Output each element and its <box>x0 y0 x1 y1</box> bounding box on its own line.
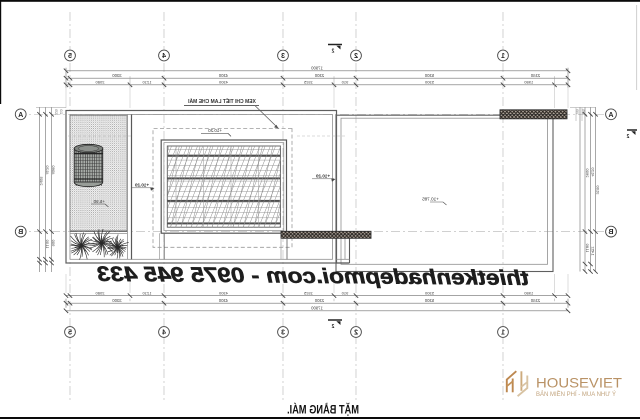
svg-text:1925: 1925 <box>303 80 313 85</box>
svg-text:5: 5 <box>68 53 72 60</box>
svg-text:+10.20: +10.20 <box>208 128 222 133</box>
svg-text:A: A <box>18 112 23 119</box>
svg-text:B: B <box>18 229 23 236</box>
svg-text:1210: 1210 <box>142 80 152 85</box>
svg-text:1: 1 <box>501 330 505 337</box>
svg-text:2405: 2405 <box>39 176 44 186</box>
svg-text:MẶT BẰNG MÁI.: MẶT BẰNG MÁI. <box>287 404 359 417</box>
svg-text:100: 100 <box>575 109 579 115</box>
svg-text:2: 2 <box>354 330 358 337</box>
svg-text:2: 2 <box>331 48 334 54</box>
svg-text:4060: 4060 <box>51 165 56 175</box>
svg-text:4300: 4300 <box>218 80 228 85</box>
svg-text:3: 3 <box>281 53 285 60</box>
svg-text:1: 1 <box>501 53 505 60</box>
svg-text:910: 910 <box>341 80 348 85</box>
svg-text:17900: 17900 <box>311 306 323 311</box>
svg-text:+10.20: +10.20 <box>134 183 149 188</box>
svg-text:5300: 5300 <box>424 298 434 303</box>
svg-text:2300: 2300 <box>314 298 324 303</box>
svg-text:110: 110 <box>59 109 63 114</box>
svg-text:4300: 4300 <box>218 298 228 303</box>
svg-text:2080: 2080 <box>95 80 105 85</box>
svg-text:4300: 4300 <box>218 290 228 295</box>
svg-text:1980: 1980 <box>524 80 534 85</box>
svg-text:3300: 3300 <box>112 298 122 303</box>
svg-text:910: 910 <box>341 290 348 295</box>
svg-text:2080: 2080 <box>95 290 105 295</box>
svg-text:4300: 4300 <box>218 73 228 78</box>
svg-text:5300: 5300 <box>424 73 434 78</box>
svg-text:4120: 4120 <box>591 167 596 177</box>
svg-text:4: 4 <box>162 330 166 337</box>
svg-text:3300: 3300 <box>112 73 122 78</box>
svg-text:2: 2 <box>626 134 629 140</box>
svg-text:1100: 1100 <box>45 239 50 248</box>
svg-text:thietkenhadepmoi.com - 0975 94: thietkenhadepmoi.com - 0975 945 433 <box>97 263 530 290</box>
svg-text:BẢN MIỀN PHÍ - MUA NHƯ Ý: BẢN MIỀN PHÍ - MUA NHƯ Ý <box>536 391 616 398</box>
svg-text:2340: 2340 <box>530 73 540 78</box>
svg-text:3100: 3100 <box>596 185 601 195</box>
svg-text:900: 900 <box>51 239 56 246</box>
svg-text:HOUSEVIET: HOUSEVIET <box>536 375 622 391</box>
svg-text:3: 3 <box>281 330 285 337</box>
svg-text:5: 5 <box>68 330 72 337</box>
svg-text:2600: 2600 <box>585 168 590 178</box>
svg-text:1980: 1980 <box>524 290 534 295</box>
svg-text:17900: 17900 <box>311 66 323 71</box>
svg-text:2: 2 <box>331 324 334 330</box>
svg-text:5300: 5300 <box>424 80 434 85</box>
svg-text:125: 125 <box>581 109 585 115</box>
svg-text:2300: 2300 <box>314 73 324 78</box>
svg-text:2: 2 <box>354 53 358 60</box>
svg-text:4120: 4120 <box>45 165 50 175</box>
svg-text:+5.90: +5.90 <box>93 199 105 204</box>
svg-text:A: A <box>608 112 613 119</box>
svg-text:B: B <box>608 229 613 236</box>
svg-text:2340: 2340 <box>530 298 540 303</box>
svg-text:XEM CHI TIẾT LAM CHE MÁI: XEM CHI TIẾT LAM CHE MÁI <box>188 98 256 105</box>
svg-text:+10.785: +10.785 <box>422 197 439 202</box>
svg-text:+10.20: +10.20 <box>315 174 330 179</box>
svg-text:1452: 1452 <box>591 246 596 256</box>
svg-text:1180: 1180 <box>585 243 590 252</box>
svg-text:1210: 1210 <box>142 290 152 295</box>
svg-text:5300: 5300 <box>424 290 434 295</box>
svg-text:4: 4 <box>162 53 166 60</box>
svg-text:1925: 1925 <box>303 290 313 295</box>
svg-text:220: 220 <box>54 109 58 115</box>
